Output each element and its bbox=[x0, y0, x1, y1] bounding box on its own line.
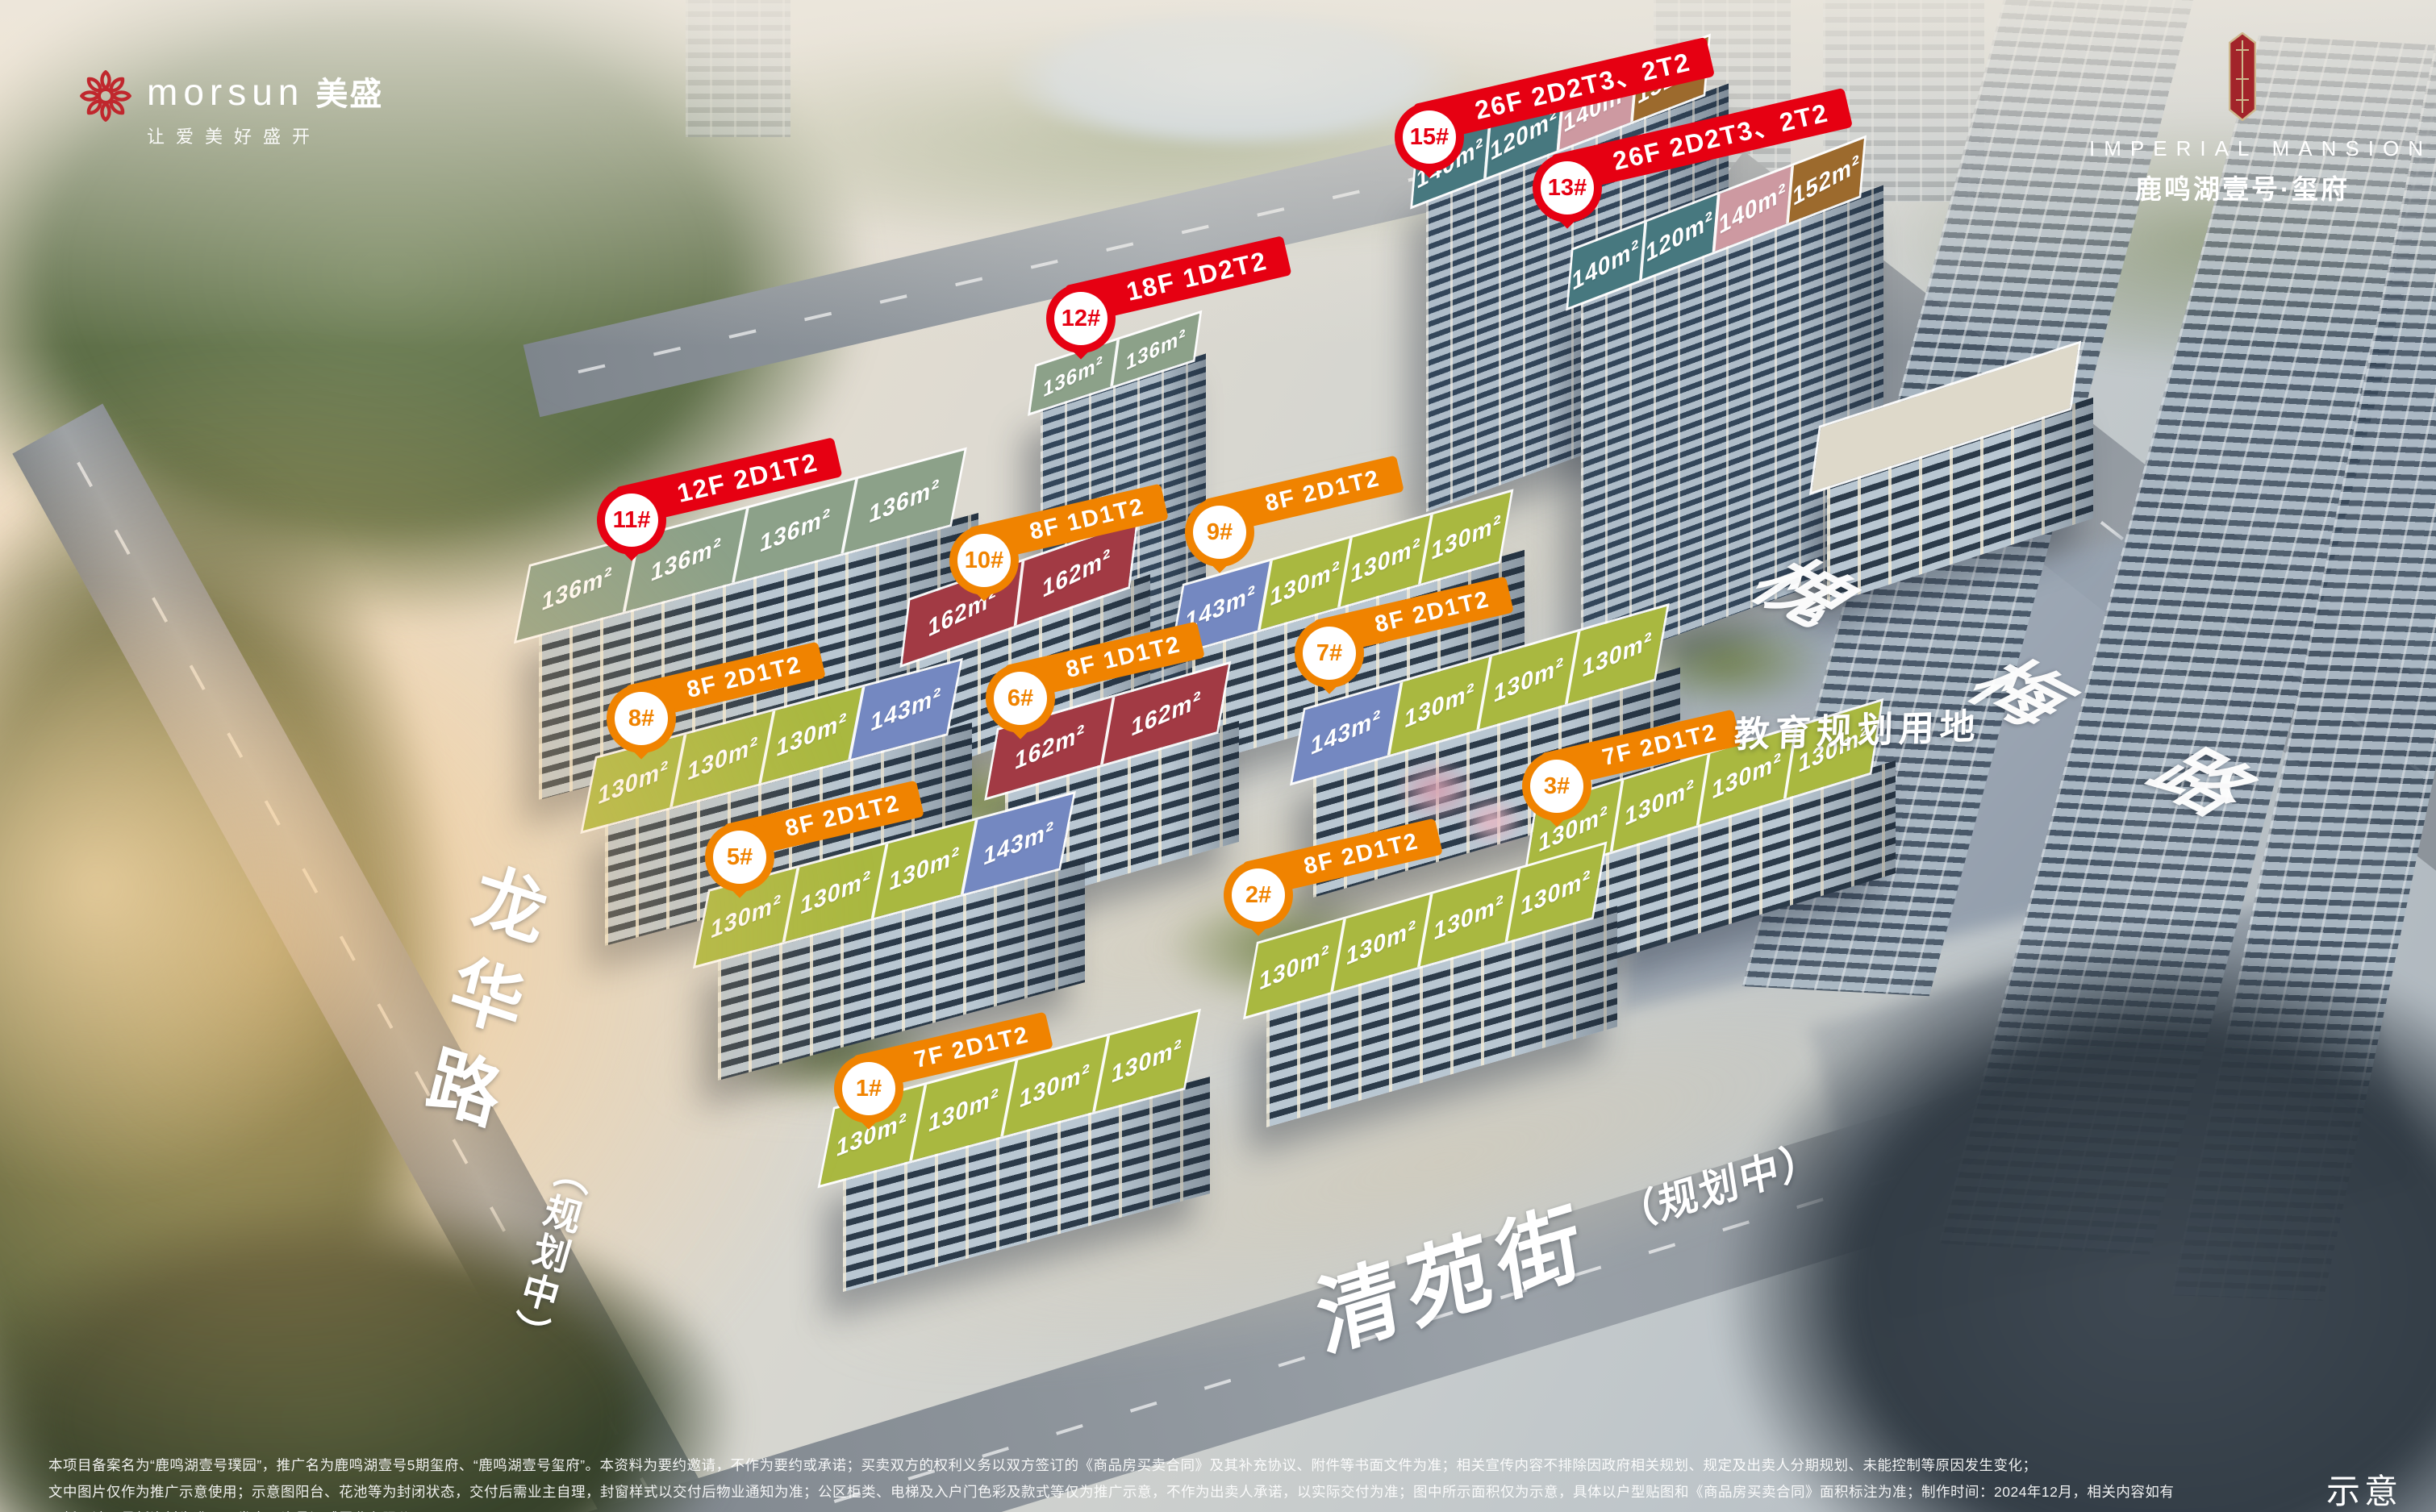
marker-pin: 1# bbox=[834, 1054, 903, 1123]
marker-6: 8F 1D1T2 6# bbox=[986, 664, 1055, 733]
site-plan-rendering: 140m² 120m² 140m² 152m² 140m² 120m² 140m… bbox=[0, 0, 2436, 1512]
marker-pin: 2# bbox=[1224, 860, 1293, 930]
marker-3: 7F 2D1T2 3# bbox=[1522, 752, 1591, 821]
project-lockup: IMPERIAL MANSION 鹿鸣湖壹号·玺府 bbox=[2089, 32, 2396, 206]
marker-pin: 11# bbox=[597, 485, 666, 555]
marker-7: 8F 2D1T2 7# bbox=[1295, 619, 1364, 688]
marker-pin: 3# bbox=[1522, 752, 1591, 821]
brand-name-cn: 美盛 bbox=[315, 68, 383, 115]
marker-pin: 5# bbox=[705, 823, 774, 892]
marker-10: 8F 1D1T2 10# bbox=[949, 526, 1019, 595]
brand-name-en: morsun bbox=[147, 70, 304, 114]
imperial-emblem-icon bbox=[2229, 110, 2256, 124]
marker-15: 26F 2D2T3、2T2 15# bbox=[1395, 102, 1464, 172]
marker-8: 8F 2D1T2 8# bbox=[607, 684, 676, 753]
project-name-en: IMPERIAL MANSION bbox=[2089, 136, 2396, 161]
marker-pin: 6# bbox=[986, 664, 1055, 733]
marker-pin: 12# bbox=[1046, 284, 1116, 353]
marker-1: 7F 2D1T2 1# bbox=[834, 1054, 903, 1123]
brand-lockup: morsun 美盛 让爱美好盛开 bbox=[79, 68, 383, 148]
marker-9: 8F 2D1T2 9# bbox=[1185, 498, 1254, 567]
marker-pin: 7# bbox=[1295, 619, 1364, 688]
education-area-label: 教育规划用地 bbox=[1733, 698, 1982, 758]
sheet-label: 示意图 bbox=[2326, 1464, 2436, 1512]
blossom-tree-2 bbox=[1460, 794, 1525, 848]
marker-13: 26F 2D2T3、2T2 13# bbox=[1533, 153, 1602, 223]
marker-11: 12F 2D1T2 11# bbox=[597, 485, 666, 555]
marker-pin: 8# bbox=[607, 684, 676, 753]
marker-12: 18F 1D2T2 12# bbox=[1046, 284, 1116, 353]
disclaimer-line-1: 本项目备案名为“鹿鸣湖壹号璞园”，推广名为鹿鸣湖壹号5期玺府、“鹿鸣湖壹号玺府”… bbox=[48, 1452, 2178, 1479]
project-name-cn: 鹿鸣湖壹号·玺府 bbox=[2089, 168, 2396, 206]
marker-pin: 13# bbox=[1533, 153, 1602, 223]
marker-pin: 10# bbox=[949, 526, 1019, 595]
morsun-flower-icon bbox=[79, 68, 132, 128]
marker-2: 8F 2D1T2 2# bbox=[1224, 860, 1293, 930]
brand-wordmark: morsun 美盛 让爱美好盛开 bbox=[147, 68, 383, 148]
disclaimer: 本项目备案名为“鹿鸣湖壹号璞园”，推广名为鹿鸣湖壹号5期玺府、“鹿鸣湖壹号玺府”… bbox=[48, 1452, 2178, 1512]
marker-5: 8F 2D1T2 5# bbox=[705, 823, 774, 892]
marker-pin: 15# bbox=[1395, 102, 1464, 172]
brand-tagline: 让爱美好盛开 bbox=[147, 123, 383, 148]
marker-pin: 9# bbox=[1185, 498, 1254, 567]
disclaimer-line-2: 文中图片仅作为推广示意使用；示意图阳台、花池等为封闭状态，交付后需业主自理，封窗… bbox=[48, 1479, 2178, 1512]
context-tower-6 bbox=[686, 0, 790, 137]
